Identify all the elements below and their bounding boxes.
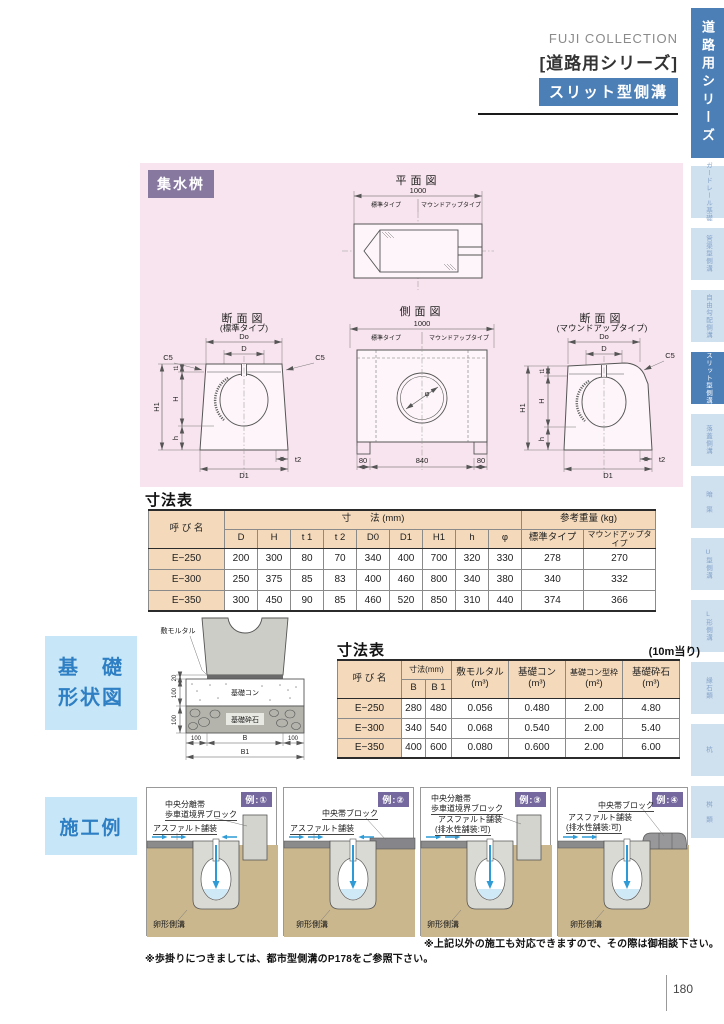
product-category-badge: スリット型側溝 — [539, 78, 678, 106]
sidebar-tab-pipe-gutter[interactable]: 管渠型側溝 — [691, 228, 724, 280]
col-group-dimensions: 寸 法 (mm) — [225, 510, 522, 529]
example-badge: 例:① — [241, 792, 272, 807]
dim-label-t1: t1 — [540, 368, 546, 374]
panel-label: 歩車道境界ブロック — [431, 804, 503, 815]
catalog-page: 道路用シリーズ ガードレール基礎 管渠型側溝 自由勾配側溝 スリット型側溝 落蓋… — [0, 0, 724, 1024]
gutter-label: 卵形側溝 — [153, 920, 185, 930]
example-badge: 例:② — [378, 792, 409, 807]
brand-text: FUJI COLLECTION — [549, 31, 678, 46]
dim-label-c5-left: C5 — [163, 353, 173, 362]
gutter-label: 卵形側溝 — [296, 920, 328, 930]
dim-20: 20 — [172, 674, 178, 681]
note-other-construction: ※上記以外の施工も対応できますので、その際は御相談下さい。 — [424, 935, 719, 950]
sidebar-tab-slit-gutter[interactable]: スリット型側溝 — [691, 352, 724, 404]
cross-section-mound-drawing: Do D C5 H1 t1 H h t2 D1 — [518, 332, 686, 480]
foundation-quantity-table: 呼 び 名 寸法(mm) 敷モルタル(m³) 基礎コン(m³) 基礎コン型枠(m… — [337, 659, 680, 759]
side-view-title: 側面図 — [330, 303, 514, 319]
table-row: E−350 400600 0.0800.6002.006.00 — [338, 738, 680, 758]
panel-label: アスファルト舗装 — [290, 824, 354, 835]
per-10m-note: (10m当り) — [560, 643, 700, 659]
side-dim-1000: 1000 — [414, 319, 431, 328]
panel-label: アスファルト舗装 — [438, 815, 502, 825]
table-row: E−300 340540 0.0680.5402.005.40 — [338, 718, 680, 738]
page-number: 180 — [673, 982, 693, 996]
dim-label-t2: t2 — [659, 455, 665, 464]
foundation-shape-drawing: 敷モルタル 基礎コン 基礎砕石 20 100 100 100 B 100 B1 — [140, 618, 345, 768]
side-type-right-label: マウンドアップタイプ — [429, 334, 489, 342]
construction-example-panel-2: 例:② 中央帯ブロック アスファルト舗装 卵形側溝 — [283, 787, 414, 936]
dim-label-phi: φ — [425, 389, 430, 398]
dim-label-d1: D1 — [239, 471, 249, 480]
panel-label: (排水性舗装:可) — [566, 823, 622, 834]
base-table-title: 寸法表 — [337, 639, 385, 660]
dim-label-h-low: h — [171, 436, 180, 440]
side-dim-80-left: 80 — [359, 456, 367, 465]
dim-label-h1: H1 — [518, 403, 527, 413]
foundation-crushed-stone-label: 基礎砕石 — [231, 715, 259, 724]
table-row: E−350 3004509085460520850310440 374366 — [149, 590, 656, 611]
panel-label: アスファルト舗装 — [568, 813, 632, 823]
col-header-crushed-stone: 基礎砕石(m³) — [623, 660, 680, 698]
plan-type-left-label: 標準タイプ — [371, 201, 401, 209]
dim-table-title: 寸法表 — [145, 489, 193, 510]
construction-example-section-label: 施工例 — [45, 797, 137, 855]
col-header-formwork: 基礎コン型枠(m²) — [566, 660, 623, 698]
side-type-left-label: 標準タイプ — [371, 334, 401, 342]
construction-example-panel-3: 例:③ 中央分離帯 歩車道境界ブロック アスファルト舗装 (排水性舗装:可) 卵… — [420, 787, 551, 936]
panel-label: 中央分離帯 — [165, 800, 205, 810]
table-row: E−300 2503758583400460800340380 340332 — [149, 569, 656, 590]
page-number-divider — [666, 975, 667, 1011]
dim-label-t1: t1 — [174, 365, 180, 371]
table-row: E−250 280480 0.0560.4802.004.80 — [338, 698, 680, 718]
construction-example-panel-1: 例:① 中央分離帯 歩車道境界ブロック アスファルト舗装 卵形側溝 — [146, 787, 277, 936]
panel-label: 中央帯ブロック — [598, 801, 654, 812]
dim-100-left: 100 — [191, 736, 202, 742]
foundation-concrete-label: 基礎コン — [231, 688, 259, 697]
sidebar-tab-culvert[interactable]: 暗 渠 — [691, 476, 724, 528]
dim-label-h-low: h — [537, 437, 546, 441]
plan-type-right-label: マウンドアップタイプ — [421, 201, 481, 209]
header-rule — [478, 113, 678, 115]
side-dim-840: 840 — [416, 456, 429, 465]
dim-b: B — [243, 735, 248, 742]
foundation-shape-section-label: 基 礎 形状図 — [45, 636, 137, 730]
dim-label-d1: D1 — [603, 471, 613, 480]
dim-100-concrete: 100 — [172, 687, 178, 698]
dim-label-h1: H1 — [152, 402, 161, 412]
sidebar-tab-u-gutter[interactable]: U型側溝 — [691, 538, 724, 590]
side-dim-80-right: 80 — [477, 456, 485, 465]
cross-section-standard-drawing: Do D C5 C5 H1 t1 H h t2 D1 — [152, 332, 336, 480]
plan-view-drawing: 1000 標準タイプ マウンドアップタイプ — [348, 186, 488, 302]
series-title: [道路用シリーズ] — [540, 49, 678, 74]
sidebar-tab-label: 道路用シリーズ — [698, 20, 717, 146]
gutter-label: 卵形側溝 — [570, 920, 602, 930]
panel-label: 中央分離帯 — [431, 794, 471, 804]
dim-100-crushed: 100 — [172, 714, 178, 725]
col-group-weight: 参考重量 (kg) — [522, 510, 656, 529]
dim-label-d: D — [601, 344, 607, 353]
sidebar-tab-basins[interactable]: 桝 類 — [691, 786, 724, 838]
panel-label: アスファルト舗装 — [153, 824, 217, 835]
dim-label-d: D — [241, 344, 247, 353]
sidebar-tab-free-gradient-gutter[interactable]: 自由勾配側溝 — [691, 290, 724, 342]
col-header-name: 呼 び 名 — [338, 660, 402, 698]
table-row: E−250 2003008070340400700320330 278270 — [149, 548, 656, 569]
sidebar-tab-curbstones[interactable]: 縁石類 — [691, 662, 724, 714]
note-reference-p178: ※歩掛りにつきましては、都市型側溝のP178をご参照下さい。 — [145, 950, 434, 965]
col-group-dimensions: 寸法(mm) — [402, 660, 452, 679]
dim-label-do: Do — [599, 332, 609, 341]
gutter-label: 卵形側溝 — [427, 920, 459, 930]
sidebar-tab-pile[interactable]: 杭 — [691, 724, 724, 776]
plan-dim-1000: 1000 — [410, 186, 427, 195]
dim-label-h-cap: H — [171, 396, 180, 401]
panel-label: (排水性舗装:可) — [435, 825, 491, 836]
example-badge: 例:③ — [515, 792, 546, 807]
sidebar-tab-road-series[interactable]: 道路用シリーズ — [691, 8, 724, 158]
example-badge: 例:④ — [652, 792, 683, 807]
catch-basin-badge: 集水桝 — [148, 170, 214, 198]
col-header-name: 呼 び 名 — [149, 510, 225, 548]
construction-example-panel-4: 例:④ 中央帯ブロック アスファルト舗装 (排水性舗装:可) 卵形側溝 — [557, 787, 688, 936]
col-header-concrete: 基礎コン(m³) — [509, 660, 566, 698]
dim-label-t2: t2 — [295, 455, 301, 464]
mortar-label: 敷モルタル — [161, 626, 196, 635]
dim-label-h-cap: H — [537, 398, 546, 403]
col-header-mortar: 敷モルタル(m³) — [452, 660, 509, 698]
side-view-drawing: 1000 標準タイプ マウンドアップタイプ φ 80 840 80 — [330, 320, 514, 480]
panel-label: 歩車道境界ブロック — [165, 810, 237, 821]
dimension-table: 呼 び 名 寸 法 (mm) 参考重量 (kg) D H t 1 t 2 D0 … — [148, 509, 656, 612]
dim-b1: B1 — [241, 749, 250, 756]
dim-label-c5-right: C5 — [315, 353, 325, 362]
dim-label-do: Do — [239, 332, 249, 341]
dim-100-right: 100 — [288, 736, 299, 742]
dim-label-c5: C5 — [665, 351, 675, 360]
sidebar-tab-guardrail-foundation[interactable]: ガードレール基礎 — [691, 166, 724, 218]
sidebar-tab-drop-lid-gutter[interactable]: 落蓋側溝 — [691, 414, 724, 466]
panel-label: 中央帯ブロック — [322, 809, 378, 820]
